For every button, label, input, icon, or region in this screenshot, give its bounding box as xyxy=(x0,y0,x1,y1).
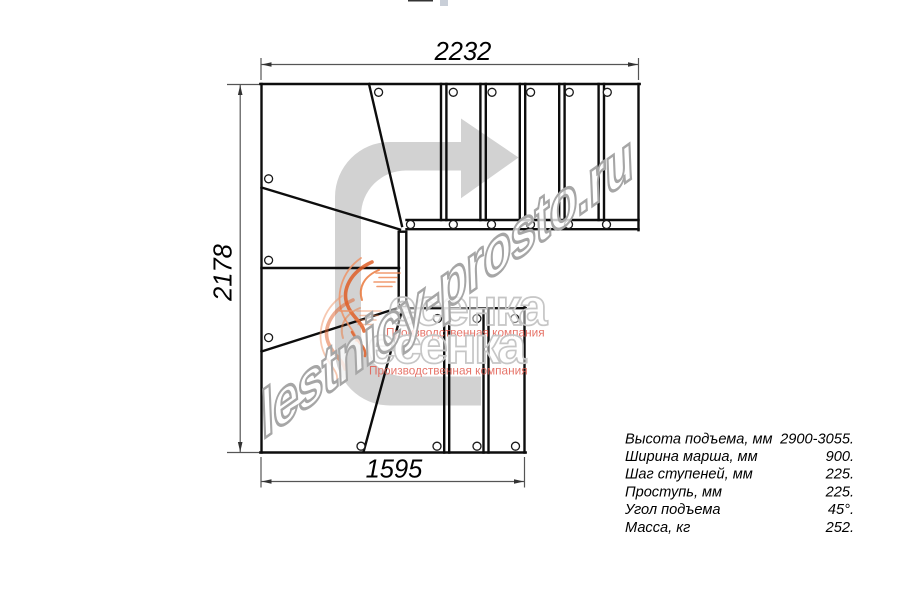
svg-text:900.: 900. xyxy=(826,449,854,465)
svg-text:Ширина марша, мм: Ширина марша, мм xyxy=(625,449,758,465)
svg-text:2900-3055.: 2900-3055. xyxy=(779,431,854,447)
svg-text:Угол подъема: Угол подъема xyxy=(624,502,720,518)
svg-text:Шаг ступеней, мм: Шаг ступеней, мм xyxy=(625,467,753,483)
svg-text:Масса, кг: Масса, кг xyxy=(625,520,690,536)
svg-text:Проступь, мм: Проступь, мм xyxy=(625,484,722,500)
svg-text:2232: 2232 xyxy=(434,38,492,66)
svg-text:225.: 225. xyxy=(825,484,854,500)
svg-text:2178: 2178 xyxy=(210,243,238,302)
svg-text:1595: 1595 xyxy=(366,456,424,484)
svg-text:252.: 252. xyxy=(825,520,854,536)
svg-text:Высота подъема, мм: Высота подъема, мм xyxy=(625,431,773,447)
svg-text:225.: 225. xyxy=(825,467,854,483)
svg-text:45°.: 45°. xyxy=(828,502,854,518)
svg-text:Производственная компания: Производственная компания xyxy=(369,364,528,378)
